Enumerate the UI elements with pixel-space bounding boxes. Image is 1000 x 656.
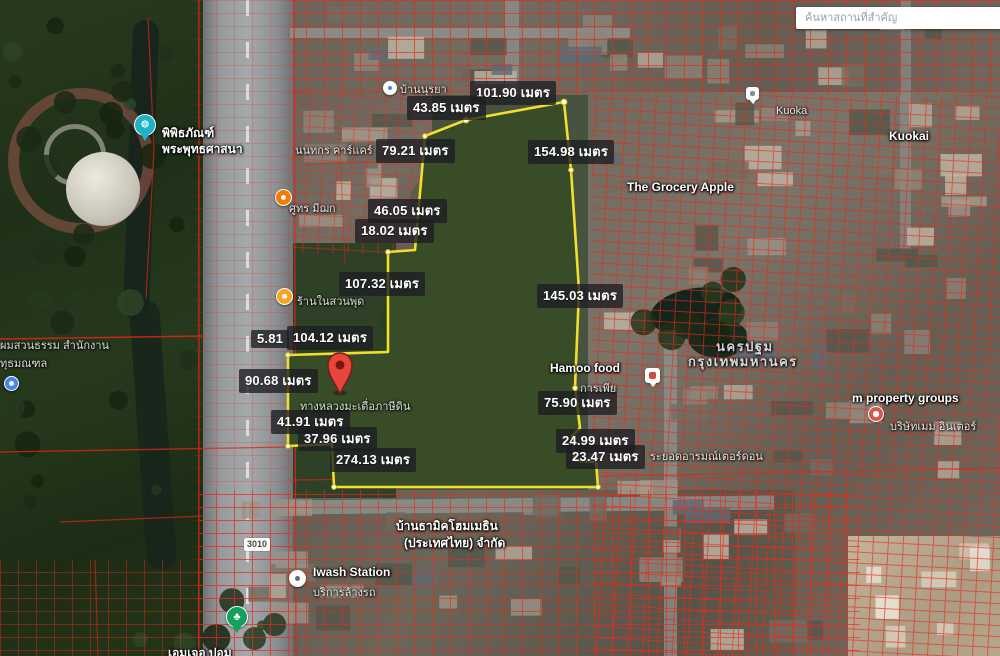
place-label[interactable]: ระยอดอารมณ์เตอร์ดอน xyxy=(650,447,763,465)
measurement-label: 145.03 เมตร xyxy=(537,284,623,308)
measurement-label: 18.02 เมตร xyxy=(355,219,434,243)
restaurant-poi-glyph xyxy=(281,195,287,201)
search-input[interactable] xyxy=(796,7,1000,29)
kuoka-pin-glyph xyxy=(750,91,756,97)
measurement-label: 79.21 เมตร xyxy=(376,139,455,163)
place-label[interactable]: ทุธมณฑล xyxy=(0,354,47,372)
place-label[interactable]: ศูทร มีฌก xyxy=(289,199,336,217)
measurement-label: 274.13 เมตร xyxy=(330,448,416,472)
place-label[interactable]: ร้านในสวนพุด xyxy=(297,292,364,310)
kuoka-pin[interactable] xyxy=(746,87,759,100)
park-pin[interactable]: ♣ xyxy=(226,606,248,628)
place-label[interactable]: เอมเจอ ปอม xyxy=(168,644,232,656)
museum-pin[interactable]: ☸ xyxy=(134,114,156,136)
place-label[interactable]: Iwash Station xyxy=(313,565,390,579)
place-label[interactable]: การเพีย xyxy=(580,379,616,397)
museum-pin-glyph: ☸ xyxy=(140,120,150,131)
road-number-shield: 3010 xyxy=(244,538,270,551)
nursery-poi-glyph xyxy=(388,86,393,91)
place-label[interactable]: Kuoka xyxy=(776,105,807,117)
property-group-poi-glyph xyxy=(873,411,878,416)
measurement-label: 154.98 เมตร xyxy=(528,140,614,164)
measurement-label: 5.81 xyxy=(251,330,289,348)
shop-poi-glyph xyxy=(282,294,288,300)
place-label[interactable]: Kuokai xyxy=(889,129,929,143)
carwash-poi-glyph xyxy=(295,576,301,582)
place-label[interactable]: ผมสวนธรรม สำนักงาน xyxy=(0,336,109,354)
property-group-poi[interactable] xyxy=(868,406,884,422)
measurement-label: 43.85 เมตร xyxy=(407,96,486,120)
hamoo-food-pin-glyph xyxy=(649,372,656,379)
hamoo-food-pin[interactable] xyxy=(645,368,660,383)
measurement-label: 23.47 เมตร xyxy=(566,445,645,469)
annotation-layer: 101.90 เมตร43.85 เมตร79.21 เมตร154.98 เม… xyxy=(0,0,1000,656)
place-label[interactable]: m property groups xyxy=(852,391,959,405)
place-label[interactable]: กรุงเทพมหานคร xyxy=(688,351,798,372)
place-label[interactable]: (ประเทศไทย) จำกัด xyxy=(404,534,505,553)
transit-poi-glyph xyxy=(9,381,14,386)
place-label[interactable]: บริการล้างรถ xyxy=(313,583,376,601)
place-label[interactable]: ทางหลวงมะเดื่อภาษีดิน xyxy=(300,397,410,415)
restaurant-poi[interactable] xyxy=(275,189,292,206)
nursery-poi[interactable] xyxy=(383,81,397,95)
place-label[interactable]: นนทกร คาร์แคร์ xyxy=(295,141,373,159)
carwash-poi[interactable] xyxy=(289,570,306,587)
transit-poi[interactable] xyxy=(4,376,19,391)
measurement-label: 104.12 เมตร xyxy=(287,326,373,350)
place-label[interactable]: Hamoo food xyxy=(550,361,620,375)
measurement-label: 90.68 เมตร xyxy=(239,369,318,393)
place-label[interactable]: พระพุทธศาสนา xyxy=(162,140,243,159)
shop-poi[interactable] xyxy=(276,288,293,305)
place-label[interactable]: บริษัทเมม อินเตอร์ xyxy=(890,417,976,435)
park-pin-glyph: ♣ xyxy=(233,612,240,623)
place-label[interactable]: บ้านนุรยา xyxy=(400,80,447,98)
place-label[interactable]: The Grocery Apple xyxy=(627,180,734,194)
map-canvas[interactable]: 101.90 เมตร43.85 เมตร79.21 เมตร154.98 เม… xyxy=(0,0,1000,656)
